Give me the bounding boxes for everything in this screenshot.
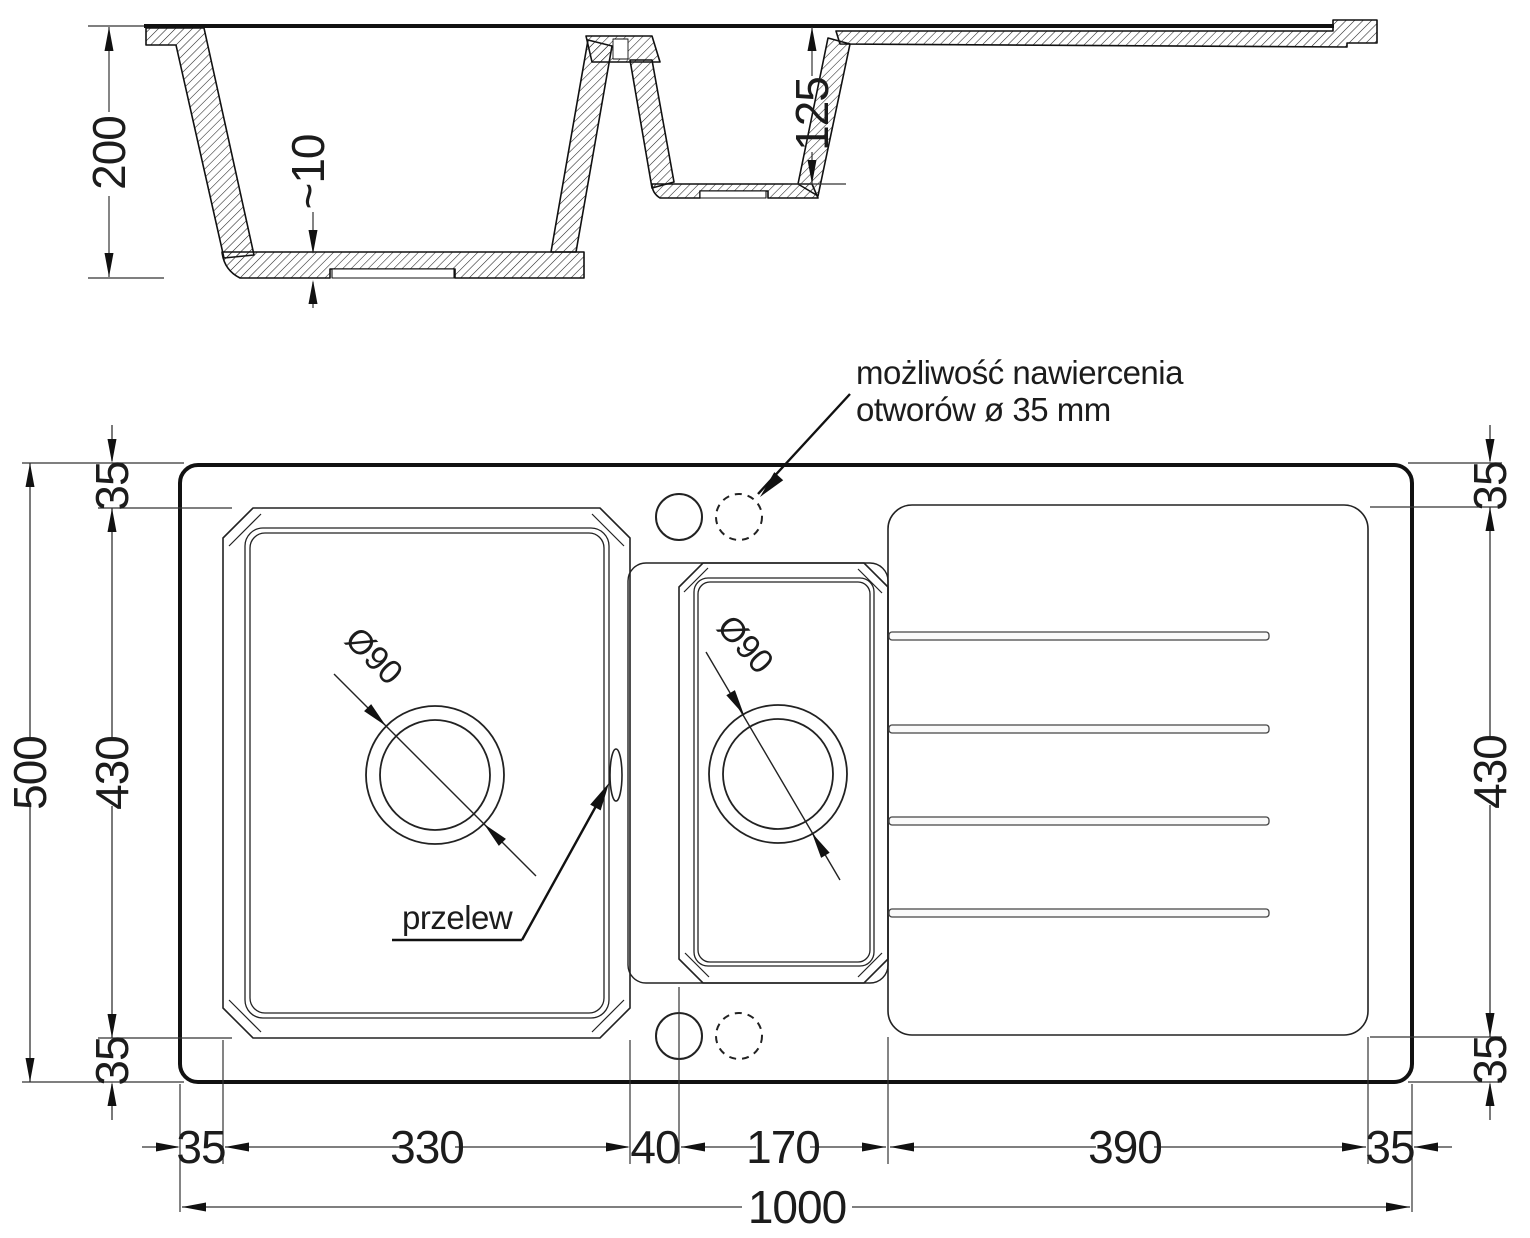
drainer-groove [889, 632, 1269, 640]
overflow-label: przelew [402, 899, 513, 936]
drill-note-line2: otworów ø 35 mm [856, 391, 1111, 428]
section-overflow-channel [613, 39, 628, 59]
dim-bottom-drainer-width: 390 [1088, 1121, 1162, 1173]
dim-bottom-half-bowl-width: 170 [746, 1121, 820, 1173]
faucet-hole-bottom-optional [716, 1013, 762, 1059]
dim-bottom-left-margin: 35 [176, 1121, 225, 1173]
dim-left-top-margin: 35 [86, 461, 138, 510]
dim-left-bowl-height: 430 [86, 736, 138, 810]
section-main-drain-recess [332, 269, 454, 278]
plan-sink-outline [180, 465, 1412, 1082]
drainer-groove [889, 817, 1269, 825]
dim-left-total-height: 500 [4, 736, 56, 810]
dim-right-bottom-margin: 35 [1464, 1035, 1516, 1084]
sink-dimension-drawing-page: 200 ~10 125 [0, 0, 1530, 1238]
sink-technical-drawing: 200 ~10 125 [0, 0, 1530, 1238]
section-half-bowl-left-wall [630, 60, 674, 188]
drainer-groove [889, 909, 1269, 917]
overflow-slot [610, 749, 622, 801]
dim-right-top-margin: 35 [1464, 461, 1516, 510]
section-half-bowl-depth-dimension: 125 [786, 77, 838, 151]
dim-bottom-main-bowl-width: 330 [390, 1121, 464, 1173]
section-base-thickness-dimension: ~10 [282, 134, 334, 209]
drainer-groove [889, 725, 1269, 733]
section-depth-dimension: 200 [83, 116, 135, 190]
dim-left-bottom-margin: 35 [86, 1036, 138, 1085]
dim-bottom-divider-width: 40 [630, 1121, 679, 1173]
section-half-drain-recess [700, 191, 766, 198]
plan-view: Ø90 Ø90 przelew możliwość nawiercenia ot… [180, 354, 1412, 1082]
dim-bottom-total-width: 1000 [748, 1181, 846, 1233]
section-divider-left-wall [551, 40, 612, 252]
dim-right-drainer-height: 430 [1464, 735, 1516, 809]
drill-note-line1: możliwość nawiercenia [856, 354, 1184, 391]
faucet-hole-top-optional [716, 494, 762, 540]
dim-bottom-right-margin: 35 [1365, 1121, 1414, 1173]
section-main-bowl-left-wall [146, 28, 254, 258]
faucet-hole-top [656, 494, 702, 540]
